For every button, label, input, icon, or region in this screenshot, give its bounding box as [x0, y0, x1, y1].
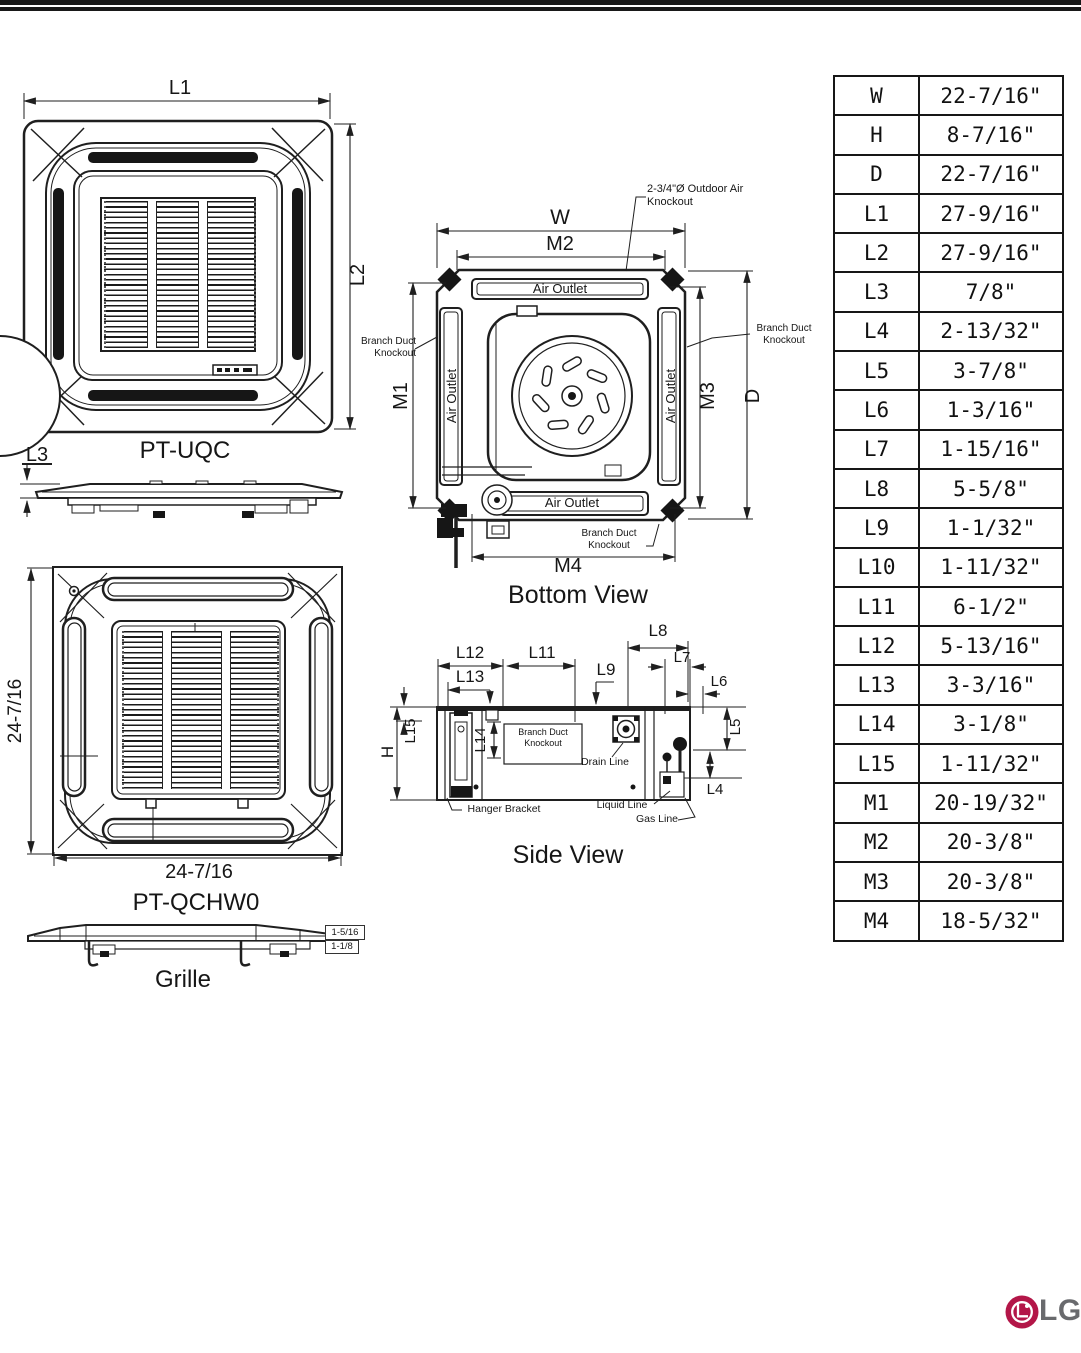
leader-branch-duct-right — [687, 334, 750, 347]
dim-value: 1-11/32" — [919, 744, 1063, 783]
table-row: M320-3/8" — [834, 862, 1063, 901]
side-view-title: Side View — [468, 841, 668, 871]
bottom-view-title: Bottom View — [478, 581, 678, 611]
grille-latch-left — [146, 799, 156, 808]
lg-logo-text: LG — [1039, 1294, 1081, 1328]
grille-profile — [28, 925, 345, 965]
dim-value: 1-11/32" — [919, 548, 1063, 587]
dim-key: M3 — [834, 862, 919, 901]
branch-duct-knockout-box-label: Branch Duct Knockout — [506, 727, 580, 748]
top-view-caption: PT-UQC — [123, 437, 247, 465]
leader-outdoor-air-knockout — [626, 197, 646, 271]
table-row: M220-3/8" — [834, 823, 1063, 862]
table-row: D22-7/16" — [834, 155, 1063, 194]
dim-key: M2 — [834, 823, 919, 862]
gas-line-label: Gas Line — [626, 813, 688, 825]
dim-value: 20-3/8" — [919, 823, 1063, 862]
air-outlet-label-right: Air Outlet — [661, 356, 681, 436]
dim-value: 20-19/32" — [919, 783, 1063, 822]
dim-value: 18-5/32" — [919, 901, 1063, 940]
grille-latch-right — [238, 799, 248, 808]
drain-line-label: Drain Line — [574, 756, 636, 768]
dim-value: 3-1/8" — [919, 705, 1063, 744]
air-outlet-label-bottom: Air Outlet — [517, 495, 627, 510]
dim-label-w: W — [538, 206, 582, 231]
dim-key: L12 — [834, 626, 919, 665]
grille-profile-dim-top: 1-5/16 — [325, 925, 365, 940]
table-row: W22-7/16" — [834, 76, 1063, 115]
grille-label: Grille — [121, 966, 245, 994]
dim-value: 2-13/32" — [919, 312, 1063, 351]
dim-label-m1: M1 — [391, 356, 411, 436]
dim-value: 1-3/16" — [919, 390, 1063, 429]
dim-key: L4 — [834, 312, 919, 351]
dim-label-l12: L12 — [448, 643, 492, 663]
dim-key: M1 — [834, 783, 919, 822]
grille-divider — [162, 631, 172, 789]
dim-label-l15: L15 — [401, 691, 421, 771]
dim-label-m4: M4 — [544, 555, 592, 579]
dimension-table: W22-7/16" H8-7/16" D22-7/16" L127-9/16" … — [833, 75, 1064, 942]
dim-value: 3-3/16" — [919, 665, 1063, 704]
dim-key: L5 — [834, 351, 919, 390]
dim-value: 27-9/16" — [919, 194, 1063, 233]
table-row: L37/8" — [834, 272, 1063, 311]
dim-key: L15 — [834, 744, 919, 783]
table-row: L127-9/16" — [834, 194, 1063, 233]
dim-key: M4 — [834, 901, 919, 940]
dim-value: 1-15/16" — [919, 430, 1063, 469]
table-row: L42-13/32" — [834, 312, 1063, 351]
table-row: M418-5/32" — [834, 901, 1063, 940]
air-outlet-label-left: Air Outlet — [442, 356, 462, 436]
table-row: L116-1/2" — [834, 587, 1063, 626]
table-row: L71-15/16" — [834, 430, 1063, 469]
dim-value: 27-9/16" — [919, 233, 1063, 272]
dim-value: 6-1/2" — [919, 587, 1063, 626]
dim-key: L13 — [834, 665, 919, 704]
hanger-bracket-shape — [450, 710, 472, 797]
dim-key: L10 — [834, 548, 919, 587]
hanger-bracket-label: Hanger Bracket — [462, 803, 546, 815]
grille-divider — [147, 201, 157, 348]
outlet-slot-right — [310, 618, 332, 796]
grille-fins-grille-view — [122, 631, 279, 789]
air-vane-bottom — [88, 390, 258, 401]
dim-value: 5-13/16" — [919, 626, 1063, 665]
outlet-slot-left — [63, 618, 85, 796]
air-vane-left — [53, 188, 64, 360]
table-row: L91-1/32" — [834, 508, 1063, 547]
outlet-slot-top — [103, 578, 293, 600]
air-vane-top — [88, 152, 258, 163]
dim-label-l14: L14 — [471, 700, 491, 780]
top-view-profile — [20, 464, 342, 518]
dim-key: L9 — [834, 508, 919, 547]
dim-label-d: D — [743, 356, 763, 436]
table-row: L151-11/32" — [834, 744, 1063, 783]
dim-label-m2: M2 — [536, 233, 584, 257]
dim-value: 20-3/8" — [919, 862, 1063, 901]
dim-label-l4: L4 — [697, 781, 733, 799]
table-row: M120-19/32" — [834, 783, 1063, 822]
grille-profile-dim-bottom: 1-1/8 — [325, 940, 359, 954]
table-row: L125-13/16" — [834, 626, 1063, 665]
air-outlet-label-top: Air Outlet — [505, 281, 615, 296]
grille-divider — [221, 631, 231, 789]
grille-divider — [198, 201, 208, 348]
dim-value: 3-7/8" — [919, 351, 1063, 390]
dim-label-l13: L13 — [448, 667, 492, 687]
dim-key: L1 — [834, 194, 919, 233]
grille-caption: PT-QCHW0 — [114, 889, 278, 917]
table-row: L143-1/8" — [834, 705, 1063, 744]
dim-label-l3: L3 — [20, 444, 54, 468]
table-row: L133-3/16" — [834, 665, 1063, 704]
air-vane-right — [292, 188, 303, 360]
dim-key: D — [834, 155, 919, 194]
dim-value: 8-7/16" — [919, 115, 1063, 154]
lg-logo-icon — [1006, 1296, 1039, 1329]
leader-branch-duct-left — [415, 337, 437, 349]
dim-label-m3: M3 — [698, 356, 718, 436]
dim-value: 7/8" — [919, 272, 1063, 311]
dim-label-l1: L1 — [158, 77, 202, 101]
table-row: L61-3/16" — [834, 390, 1063, 429]
dim-value: 1-1/32" — [919, 508, 1063, 547]
liquid-line-label: Liquid Line — [590, 799, 654, 811]
branch-duct-knockout-label-right: Branch Duct Knockout — [751, 323, 817, 347]
dim-label-l9: L9 — [584, 660, 628, 680]
outlet-slot-bottom — [103, 819, 293, 841]
dim-value: 22-7/16" — [919, 76, 1063, 115]
dim-label-l11: L11 — [520, 643, 564, 663]
dim-key: H — [834, 115, 919, 154]
dim-key: L6 — [834, 390, 919, 429]
dim-key: L7 — [834, 430, 919, 469]
drain-connector — [613, 716, 639, 742]
dim-key: L14 — [834, 705, 919, 744]
drain-piping — [437, 504, 467, 568]
grille-height-dim-label: 24-7/16 — [6, 671, 26, 751]
dim-key: W — [834, 76, 919, 115]
dim-value: 5-5/8" — [919, 469, 1063, 508]
dim-label-l5: L5 — [726, 687, 746, 767]
branch-duct-knockout-label-bottom: Branch Duct Knockout — [572, 528, 646, 552]
outdoor-air-knockout-label: 2-3/4"Ø Outdoor Air Knockout — [647, 183, 775, 209]
dim-label-l7: L7 — [664, 649, 700, 667]
table-row: L101-11/32" — [834, 548, 1063, 587]
dim-value: 22-7/16" — [919, 155, 1063, 194]
dim-key: L11 — [834, 587, 919, 626]
table-row: L85-5/8" — [834, 469, 1063, 508]
grille-width-dim-label: 24-7/16 — [155, 861, 243, 885]
grille-fins-top-view — [104, 201, 256, 348]
spec-sheet-page: L1 L2 PT-UQC L3 W M2 2-3/4"Ø Outdoor Air… — [0, 0, 1081, 1353]
dim-key: L2 — [834, 233, 919, 272]
table-row: H8-7/16" — [834, 115, 1063, 154]
dim-key: L8 — [834, 469, 919, 508]
dim-key: L3 — [834, 272, 919, 311]
dim-label-l2: L2 — [348, 235, 368, 315]
dim-label-l8: L8 — [636, 621, 680, 641]
table-row: L53-7/8" — [834, 351, 1063, 390]
table-row: L227-9/16" — [834, 233, 1063, 272]
dim-label-h: H — [378, 712, 398, 792]
leader-branch-duct-bottom — [646, 524, 659, 546]
